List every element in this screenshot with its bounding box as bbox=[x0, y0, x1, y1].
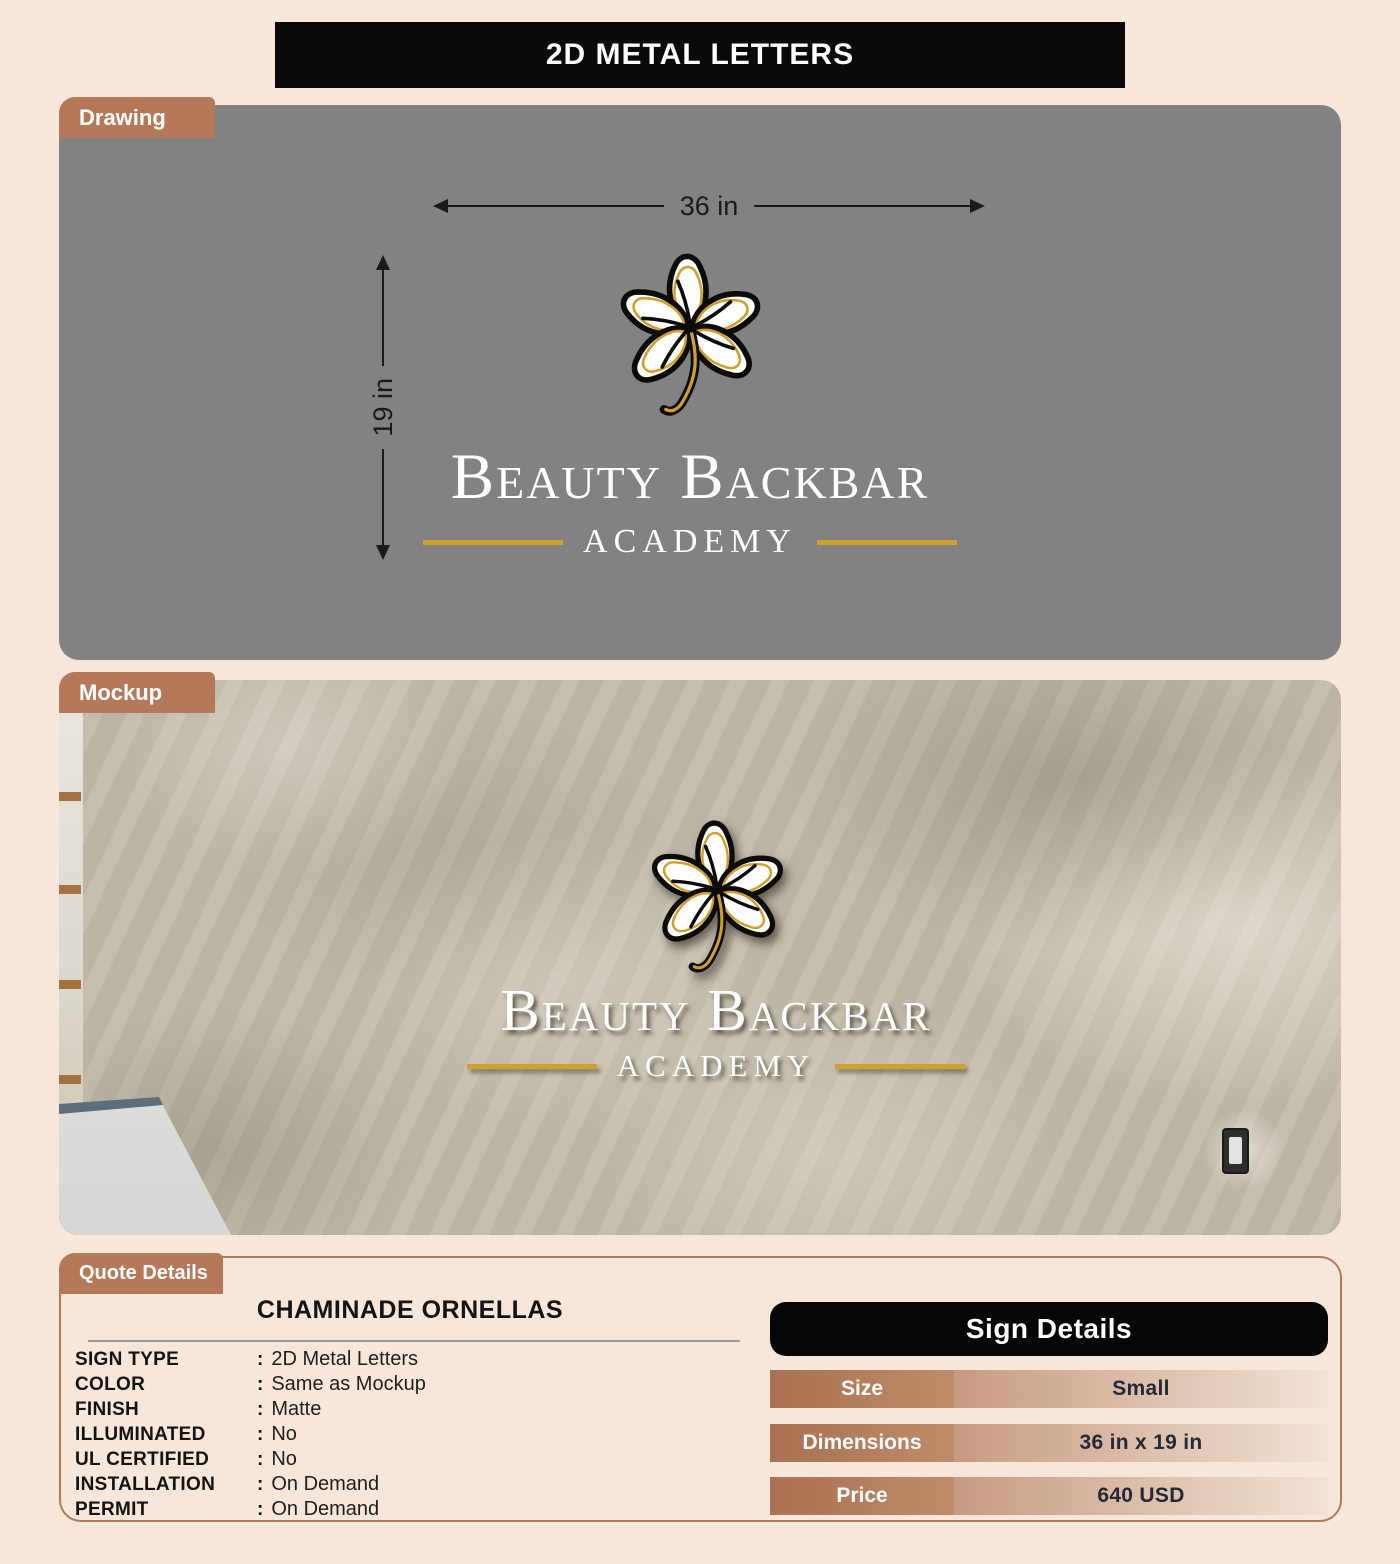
width-dimension-label: 36 in bbox=[664, 191, 755, 222]
row-label: Size bbox=[770, 1370, 954, 1408]
dimension-line bbox=[448, 205, 664, 207]
sign-details-row-dimensions: Dimensions 36 in x 19 in bbox=[770, 1424, 1328, 1462]
field-value: Matte bbox=[271, 1398, 321, 1421]
quote-field-row: FINISH : Matte bbox=[75, 1397, 735, 1422]
row-value: Small bbox=[954, 1370, 1328, 1408]
quote-tab-label: Quote Details bbox=[79, 1262, 208, 1285]
row-value: 640 USD bbox=[954, 1477, 1328, 1515]
logo-subline: ACADEMY bbox=[456, 1048, 976, 1084]
field-colon: : bbox=[257, 1474, 263, 1496]
arrow-left-icon bbox=[433, 199, 448, 213]
page-title: 2D METAL LETTERS bbox=[546, 38, 854, 72]
field-value: On Demand bbox=[271, 1498, 379, 1521]
row-value: 36 in x 19 in bbox=[954, 1424, 1328, 1462]
field-value: 2D Metal Letters bbox=[271, 1348, 418, 1371]
drawing-panel: 36 in 19 in Beauty Backbar ACADEMY bbox=[59, 105, 1341, 660]
width-dimension: 36 in bbox=[433, 189, 985, 223]
row-label: Price bbox=[770, 1477, 954, 1515]
quote-field-row: SIGN TYPE : 2D Metal Letters bbox=[75, 1347, 735, 1372]
quote-field-row: COLOR : Same as Mockup bbox=[75, 1372, 735, 1397]
flower-logo-icon bbox=[609, 251, 771, 445]
ladder-rung bbox=[59, 1075, 81, 1084]
customer-name: CHAMINADE ORNELLAS bbox=[75, 1296, 745, 1325]
mockup-tab-label: Mockup bbox=[79, 680, 162, 706]
quote-fields: SIGN TYPE : 2D Metal Letters COLOR : Sam… bbox=[75, 1347, 735, 1522]
field-label: INSTALLATION bbox=[75, 1474, 257, 1496]
field-colon: : bbox=[257, 1424, 263, 1446]
quote-field-row: ILLUMINATED : No bbox=[75, 1422, 735, 1447]
row-label: Dimensions bbox=[770, 1424, 954, 1462]
sign-details-title: Sign Details bbox=[966, 1313, 1132, 1345]
quote-field-row: INSTALLATION : On Demand bbox=[75, 1472, 735, 1497]
arrow-right-icon bbox=[970, 199, 985, 213]
field-value: On Demand bbox=[271, 1473, 379, 1496]
field-label: SIGN TYPE bbox=[75, 1349, 257, 1371]
field-colon: : bbox=[257, 1499, 263, 1521]
counter-top bbox=[59, 680, 319, 1235]
field-label: UL CERTIFIED bbox=[75, 1449, 257, 1471]
drawing-tab-label: Drawing bbox=[79, 105, 166, 131]
sign-details-header: Sign Details bbox=[770, 1302, 1328, 1356]
logo-subline: ACADEMY bbox=[402, 523, 978, 561]
field-value: Same as Mockup bbox=[271, 1373, 426, 1396]
gold-line bbox=[423, 540, 563, 545]
logo-subline-text: ACADEMY bbox=[583, 523, 797, 561]
dimension-line bbox=[382, 449, 384, 545]
quote-field-row: UL CERTIFIED : No bbox=[75, 1447, 735, 1472]
ladder-rung bbox=[59, 980, 81, 989]
page-title-bar: 2D METAL LETTERS bbox=[275, 22, 1125, 88]
field-colon: : bbox=[257, 1399, 263, 1421]
quote-sheet: 2D METAL LETTERS Drawing 36 in 19 in bbox=[0, 0, 1400, 1564]
drawing-section-tab: Drawing bbox=[59, 97, 215, 138]
field-colon: : bbox=[257, 1374, 263, 1396]
flower-logo-icon bbox=[641, 818, 793, 1000]
mockup-photo: Beauty Backbar ACADEMY bbox=[59, 680, 1341, 1235]
height-dimension: 19 in bbox=[367, 255, 399, 560]
arrow-up-icon bbox=[376, 255, 390, 270]
field-label: PERMIT bbox=[75, 1499, 257, 1521]
field-label: COLOR bbox=[75, 1374, 257, 1396]
gold-line bbox=[817, 540, 957, 545]
field-value: No bbox=[271, 1448, 297, 1471]
gold-line bbox=[835, 1064, 965, 1069]
sign-details-row-price: Price 640 USD bbox=[770, 1477, 1328, 1515]
height-dimension-label: 19 in bbox=[368, 366, 399, 449]
gold-line bbox=[467, 1064, 597, 1069]
switch-rocker bbox=[1229, 1137, 1242, 1164]
field-label: FINISH bbox=[75, 1399, 257, 1421]
dimension-line bbox=[382, 270, 384, 366]
ladder-rung bbox=[59, 885, 81, 894]
quote-section-tab: Quote Details bbox=[59, 1253, 223, 1294]
quote-field-row: PERMIT : On Demand bbox=[75, 1497, 735, 1522]
field-colon: : bbox=[257, 1449, 263, 1471]
logo-name-text: Beauty Backbar bbox=[426, 976, 1006, 1045]
divider bbox=[88, 1340, 740, 1342]
dimension-line bbox=[754, 205, 970, 207]
field-label: ILLUMINATED bbox=[75, 1424, 257, 1446]
field-colon: : bbox=[257, 1349, 263, 1371]
ladder-rung bbox=[59, 792, 81, 801]
mockup-section-tab: Mockup bbox=[59, 672, 215, 713]
arrow-down-icon bbox=[376, 545, 390, 560]
logo-subline-text: ACADEMY bbox=[617, 1048, 816, 1084]
logo-name-text: Beauty Backbar bbox=[400, 440, 980, 515]
light-switch bbox=[1222, 1128, 1249, 1174]
field-value: No bbox=[271, 1423, 297, 1446]
sign-details-row-size: Size Small bbox=[770, 1370, 1328, 1408]
